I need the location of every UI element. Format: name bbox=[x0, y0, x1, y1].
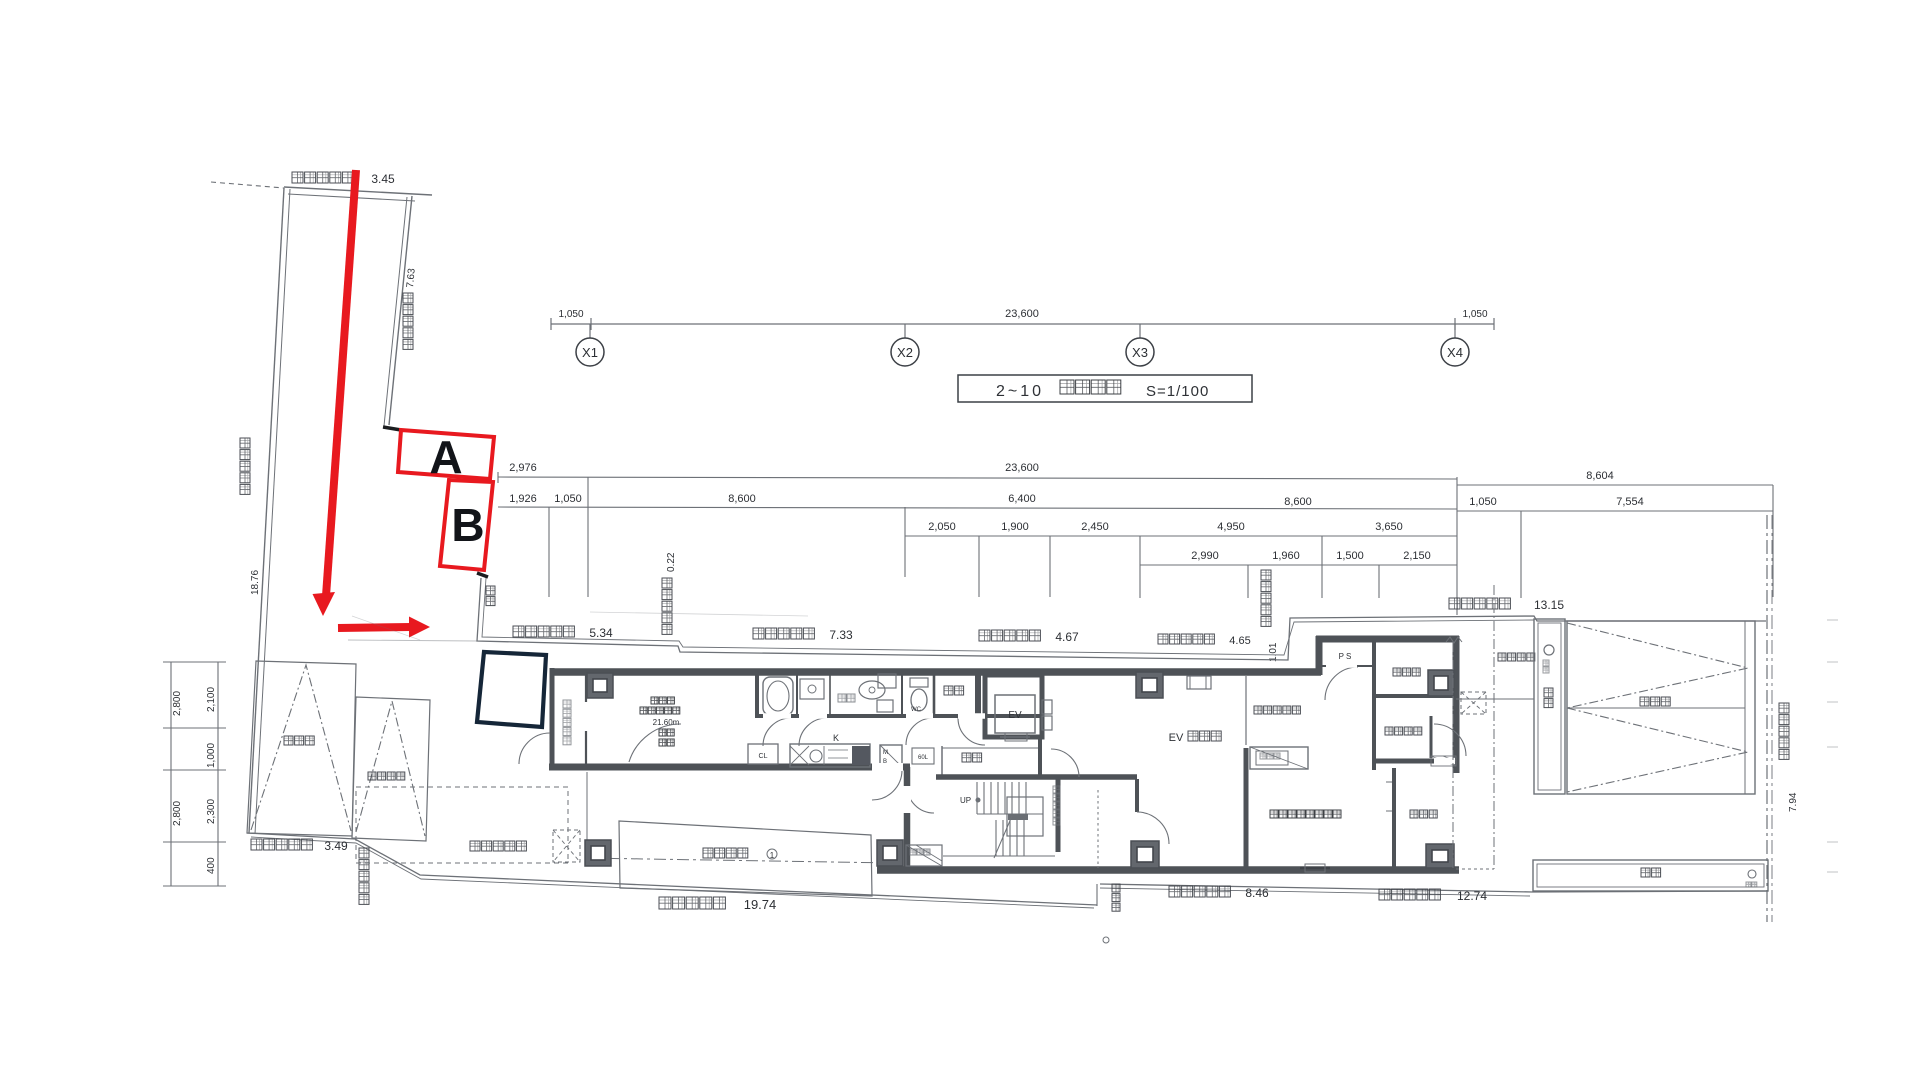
svg-text:8,600: 8,600 bbox=[1284, 496, 1312, 508]
svg-text:3,650: 3,650 bbox=[1375, 521, 1403, 533]
svg-text:3.45: 3.45 bbox=[371, 172, 395, 186]
svg-text:8,604: 8,604 bbox=[1586, 470, 1614, 482]
svg-text:23,600: 23,600 bbox=[1005, 308, 1039, 320]
svg-text:5.34: 5.34 bbox=[589, 626, 613, 640]
svg-text:1,900: 1,900 bbox=[1001, 521, 1029, 533]
svg-text:2,800: 2,800 bbox=[172, 691, 183, 716]
svg-text:2~10: 2~10 bbox=[996, 383, 1044, 400]
svg-text:X3: X3 bbox=[1132, 345, 1148, 360]
svg-text:7,554: 7,554 bbox=[1616, 496, 1644, 508]
svg-text:13.15: 13.15 bbox=[1534, 598, 1564, 612]
svg-text:CL: CL bbox=[759, 753, 768, 760]
svg-text:7.94: 7.94 bbox=[1788, 792, 1799, 812]
svg-text:7.63: 7.63 bbox=[405, 267, 418, 288]
svg-text:4.65: 4.65 bbox=[1229, 635, 1250, 647]
svg-text:1,050: 1,050 bbox=[558, 309, 583, 320]
svg-text:M: M bbox=[883, 750, 888, 756]
svg-text:4.67: 4.67 bbox=[1055, 630, 1079, 644]
svg-text:1,050: 1,050 bbox=[1469, 496, 1497, 508]
svg-text:23,600: 23,600 bbox=[1005, 462, 1039, 474]
svg-text:2,976: 2,976 bbox=[509, 462, 537, 474]
svg-text:X1: X1 bbox=[582, 345, 598, 360]
svg-text:1: 1 bbox=[770, 851, 775, 860]
svg-text:P S: P S bbox=[1339, 652, 1352, 661]
svg-text:2,450: 2,450 bbox=[1081, 521, 1109, 533]
svg-text:3.49: 3.49 bbox=[324, 839, 348, 853]
svg-text:4,950: 4,950 bbox=[1217, 521, 1245, 533]
svg-text:18.76: 18.76 bbox=[250, 570, 261, 595]
svg-text:B: B bbox=[451, 499, 484, 551]
svg-text:2,800: 2,800 bbox=[172, 801, 183, 826]
svg-text:X2: X2 bbox=[897, 345, 913, 360]
svg-text:6,400: 6,400 bbox=[1008, 493, 1036, 505]
svg-text:1,050: 1,050 bbox=[554, 493, 582, 505]
svg-text:8,600: 8,600 bbox=[728, 493, 756, 505]
svg-text:12.74: 12.74 bbox=[1457, 889, 1487, 903]
svg-text:1,926: 1,926 bbox=[509, 493, 537, 505]
svg-text:K: K bbox=[833, 733, 839, 743]
svg-text:2,990: 2,990 bbox=[1191, 550, 1219, 562]
svg-text:60L: 60L bbox=[918, 755, 929, 761]
svg-text:2,150: 2,150 bbox=[1403, 550, 1431, 562]
svg-text:1.01: 1.01 bbox=[1268, 642, 1279, 662]
svg-text:8.46: 8.46 bbox=[1245, 886, 1269, 900]
svg-text:2,100: 2,100 bbox=[206, 687, 217, 712]
svg-text:S=1/100: S=1/100 bbox=[1146, 383, 1209, 400]
svg-text:19.74: 19.74 bbox=[744, 897, 777, 912]
svg-text:1,000: 1,000 bbox=[206, 743, 217, 768]
svg-text:1,500: 1,500 bbox=[1336, 550, 1364, 562]
svg-text:0.22: 0.22 bbox=[666, 552, 677, 572]
svg-text:EV: EV bbox=[1169, 732, 1184, 744]
svg-text:UP: UP bbox=[960, 796, 971, 805]
svg-text:A: A bbox=[429, 431, 462, 483]
svg-text:2,050: 2,050 bbox=[928, 521, 956, 533]
svg-text:7.33: 7.33 bbox=[829, 628, 853, 642]
svg-text:1,050: 1,050 bbox=[1462, 309, 1487, 320]
svg-text:2,300: 2,300 bbox=[206, 799, 217, 824]
svg-text:EV: EV bbox=[1008, 710, 1022, 721]
svg-text:WC: WC bbox=[911, 707, 922, 713]
svg-text:X4: X4 bbox=[1447, 345, 1463, 360]
svg-text:400: 400 bbox=[206, 857, 217, 874]
svg-text:1,960: 1,960 bbox=[1272, 550, 1300, 562]
